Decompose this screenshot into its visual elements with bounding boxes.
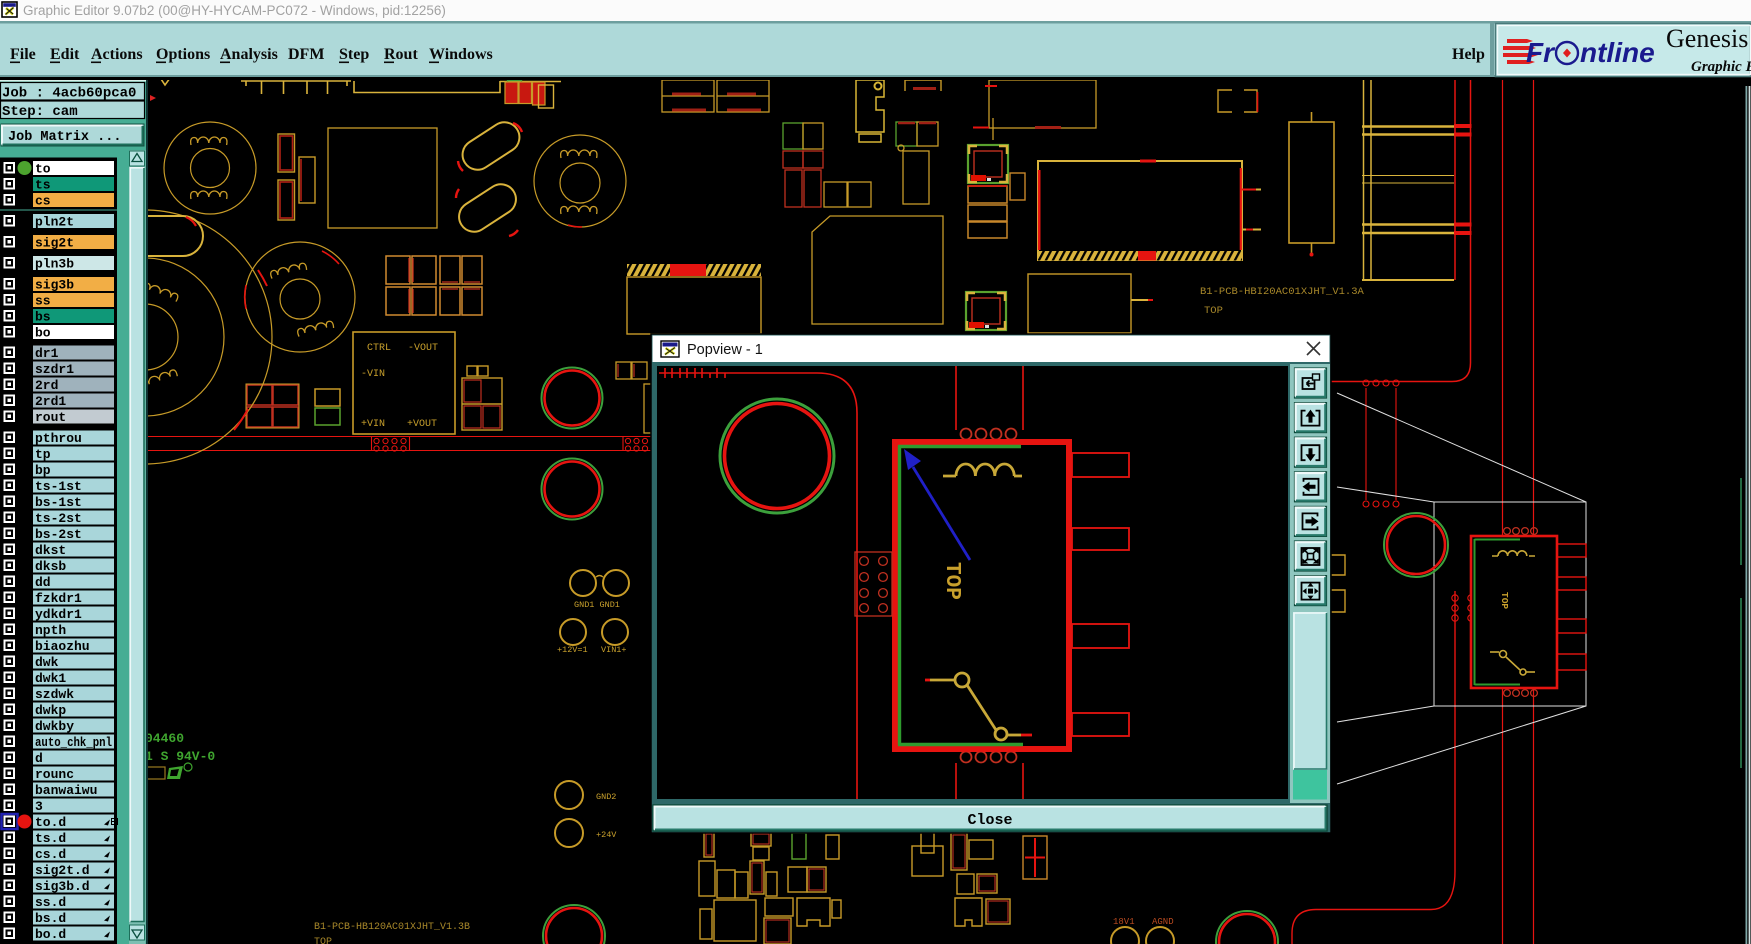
svg-text:ts.d: ts.d bbox=[35, 831, 66, 846]
svg-text:TOP: TOP bbox=[1499, 592, 1510, 609]
svg-text:B1-PCB-HB120AC01XJHT_V1.3B: B1-PCB-HB120AC01XJHT_V1.3B bbox=[314, 922, 470, 933]
svg-text:to: to bbox=[35, 162, 51, 177]
svg-text:File: File bbox=[10, 46, 36, 63]
svg-text:-VIN: -VIN bbox=[361, 369, 385, 380]
svg-text:bs-2st: bs-2st bbox=[35, 527, 82, 542]
svg-text:sig2t: sig2t bbox=[35, 236, 74, 251]
svg-text:biaozhu: biaozhu bbox=[35, 639, 90, 654]
svg-text:dwkp: dwkp bbox=[35, 703, 66, 718]
svg-text:sig2t.d: sig2t.d bbox=[35, 863, 90, 878]
svg-text:ts-1st: ts-1st bbox=[35, 479, 82, 494]
svg-text:sig3b: sig3b bbox=[35, 278, 74, 293]
svg-text:Edit: Edit bbox=[50, 46, 80, 63]
svg-text:cs: cs bbox=[35, 194, 51, 209]
svg-text:Fr: Fr bbox=[1526, 37, 1556, 68]
svg-text:ydkdr1: ydkdr1 bbox=[35, 607, 82, 622]
svg-text:Rout: Rout bbox=[384, 46, 418, 63]
svg-text:AGND: AGND bbox=[1152, 917, 1174, 927]
svg-text:banwaiwu: banwaiwu bbox=[35, 783, 97, 798]
svg-text:ss: ss bbox=[35, 294, 51, 309]
svg-text:bs-1st: bs-1st bbox=[35, 495, 82, 510]
svg-text:sig3b.d: sig3b.d bbox=[35, 879, 90, 894]
svg-text:CTRL: CTRL bbox=[367, 343, 391, 354]
svg-text:d: d bbox=[35, 751, 43, 766]
svg-text:DFM: DFM bbox=[288, 46, 324, 63]
svg-text:VIN1+: VIN1+ bbox=[601, 645, 627, 655]
svg-text:fzkdr1: fzkdr1 bbox=[35, 591, 82, 606]
svg-text:dwk: dwk bbox=[35, 655, 59, 670]
svg-text:dwkby: dwkby bbox=[35, 719, 74, 734]
svg-text:TOP: TOP bbox=[1204, 305, 1223, 317]
svg-text:Options: Options bbox=[156, 46, 210, 63]
svg-text:szdr1: szdr1 bbox=[35, 362, 74, 377]
svg-text:+24V: +24V bbox=[596, 830, 617, 840]
svg-text:npth: npth bbox=[35, 623, 66, 638]
svg-text:pln3b: pln3b bbox=[35, 257, 74, 272]
svg-text:to.d: to.d bbox=[35, 815, 66, 830]
svg-text:Help: Help bbox=[1452, 46, 1485, 63]
svg-text:1 S 94V-0: 1 S 94V-0 bbox=[145, 749, 215, 764]
svg-text:Graphic Editor 9.07b2 (00@HY-H: Graphic Editor 9.07b2 (00@HY-HYCAM-PC072… bbox=[23, 3, 446, 18]
svg-text:+12V=1: +12V=1 bbox=[557, 645, 588, 655]
svg-text:dd: dd bbox=[35, 575, 51, 590]
svg-text:rout: rout bbox=[35, 410, 66, 425]
svg-text:ts: ts bbox=[35, 178, 51, 193]
svg-text:+VOUT: +VOUT bbox=[407, 419, 437, 430]
svg-text:bo: bo bbox=[35, 326, 51, 341]
svg-text:pln2t: pln2t bbox=[35, 215, 74, 230]
svg-text:18V1: 18V1 bbox=[1113, 917, 1135, 927]
svg-text:rounc: rounc bbox=[35, 767, 74, 782]
svg-text:2rd: 2rd bbox=[35, 378, 58, 393]
svg-text:auto_chk_pnl: auto_chk_pnl bbox=[35, 735, 112, 750]
svg-text:TOP: TOP bbox=[940, 562, 963, 600]
svg-text:Windows: Windows bbox=[429, 46, 493, 63]
svg-text:bs: bs bbox=[35, 310, 51, 325]
svg-text:dwk1: dwk1 bbox=[35, 671, 66, 686]
svg-text:dr1: dr1 bbox=[35, 346, 59, 361]
svg-text:dkst: dkst bbox=[35, 543, 66, 558]
svg-text:bs.d: bs.d bbox=[35, 911, 66, 926]
svg-text:bp: bp bbox=[35, 463, 51, 478]
svg-text:Graphic E: Graphic E bbox=[1691, 59, 1751, 75]
svg-text:Close: Close bbox=[967, 812, 1012, 829]
svg-text:B1-PCB-HBI20AC01XJHT_V1.3A: B1-PCB-HBI20AC01XJHT_V1.3A bbox=[1200, 286, 1365, 298]
svg-text:bo.d: bo.d bbox=[35, 927, 66, 942]
svg-text:Actions: Actions bbox=[91, 46, 143, 63]
svg-text:Step: cam: Step: cam bbox=[2, 104, 78, 120]
svg-text:3: 3 bbox=[35, 799, 43, 814]
svg-text:ss.d: ss.d bbox=[35, 895, 66, 910]
svg-text:dksb: dksb bbox=[35, 559, 66, 574]
svg-text:04460: 04460 bbox=[145, 731, 184, 746]
svg-text:Job Matrix ...: Job Matrix ... bbox=[8, 130, 121, 145]
svg-text:Analysis: Analysis bbox=[220, 46, 278, 63]
svg-text:tp: tp bbox=[35, 447, 51, 462]
svg-text:-VOUT: -VOUT bbox=[408, 343, 438, 354]
svg-text:TOP: TOP bbox=[314, 937, 332, 944]
svg-text:ts-2st: ts-2st bbox=[35, 511, 82, 526]
svg-text:cs.d: cs.d bbox=[35, 847, 66, 862]
svg-text:Genesis: Genesis bbox=[1666, 24, 1748, 53]
svg-text:Step: Step bbox=[339, 46, 369, 63]
svg-text:GND2: GND2 bbox=[596, 792, 616, 802]
svg-text:ntline: ntline bbox=[1580, 37, 1655, 68]
svg-text:pthrou: pthrou bbox=[35, 431, 82, 446]
svg-text:Popview - 1: Popview - 1 bbox=[687, 342, 763, 358]
svg-text:2rd1: 2rd1 bbox=[35, 394, 66, 409]
svg-text:GND1 GND1: GND1 GND1 bbox=[574, 600, 620, 610]
svg-text:szdwk: szdwk bbox=[35, 687, 74, 702]
svg-text:Job : 4acb60pca0: Job : 4acb60pca0 bbox=[2, 86, 136, 102]
svg-text:+VIN: +VIN bbox=[361, 419, 385, 430]
